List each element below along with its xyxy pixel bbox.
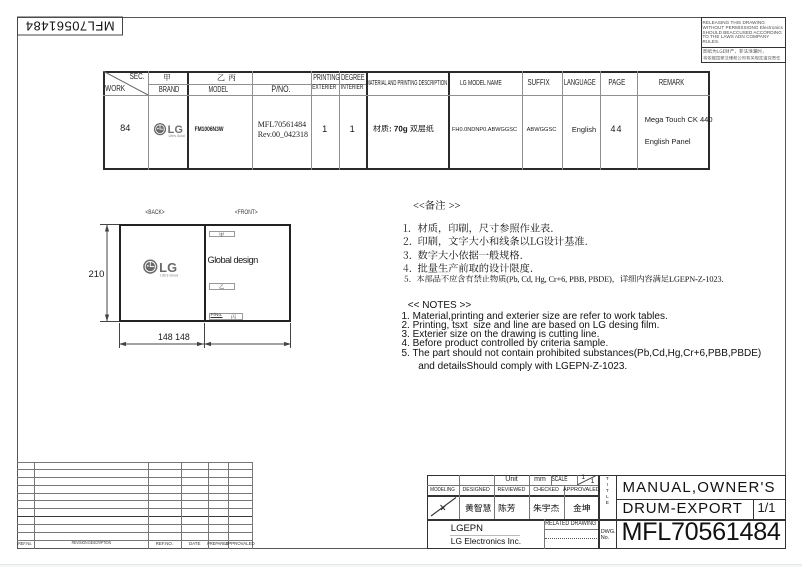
svg-text:Life's Good: Life's Good bbox=[160, 273, 178, 277]
